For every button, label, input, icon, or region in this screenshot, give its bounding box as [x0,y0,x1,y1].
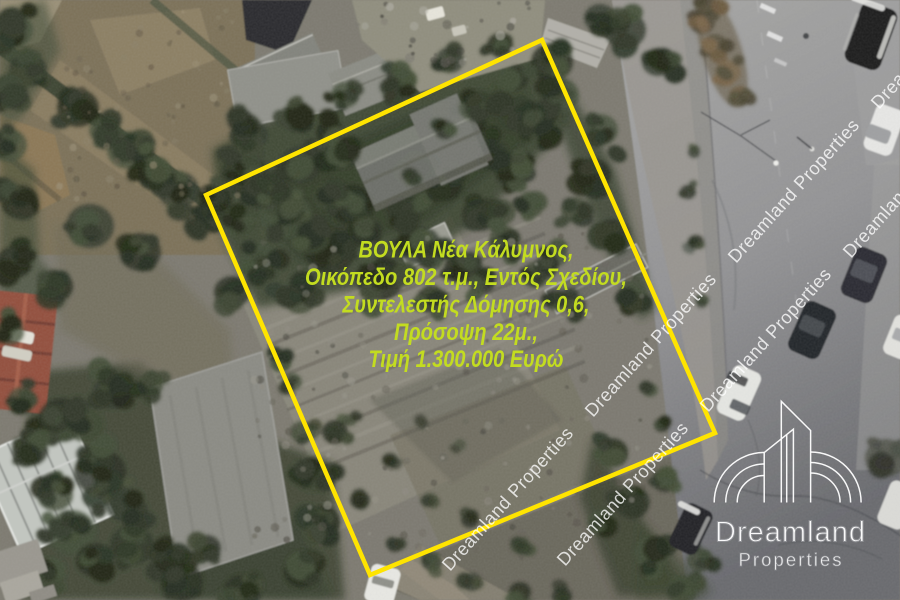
svg-text:Properties: Properties [739,549,842,570]
svg-text:ΒΟΥΛΑ Νέα Κάλυμνος,: ΒΟΥΛΑ Νέα Κάλυμνος, [359,237,574,264]
svg-text:Dreamland: Dreamland [715,517,865,549]
svg-text:Συντελεστής Δόμησης 0,6,: Συντελεστής Δόμησης 0,6, [342,292,590,319]
svg-text:Πρόσοψη 22μ.,: Πρόσοψη 22μ., [394,319,538,346]
svg-text:Τιμή 1.300.000 Ευρώ: Τιμή 1.300.000 Ευρώ [369,346,564,373]
svg-text:Οικόπεδο 802 τ.μ., Εντός Σχεδί: Οικόπεδο 802 τ.μ., Εντός Σχεδίου, [305,264,627,291]
